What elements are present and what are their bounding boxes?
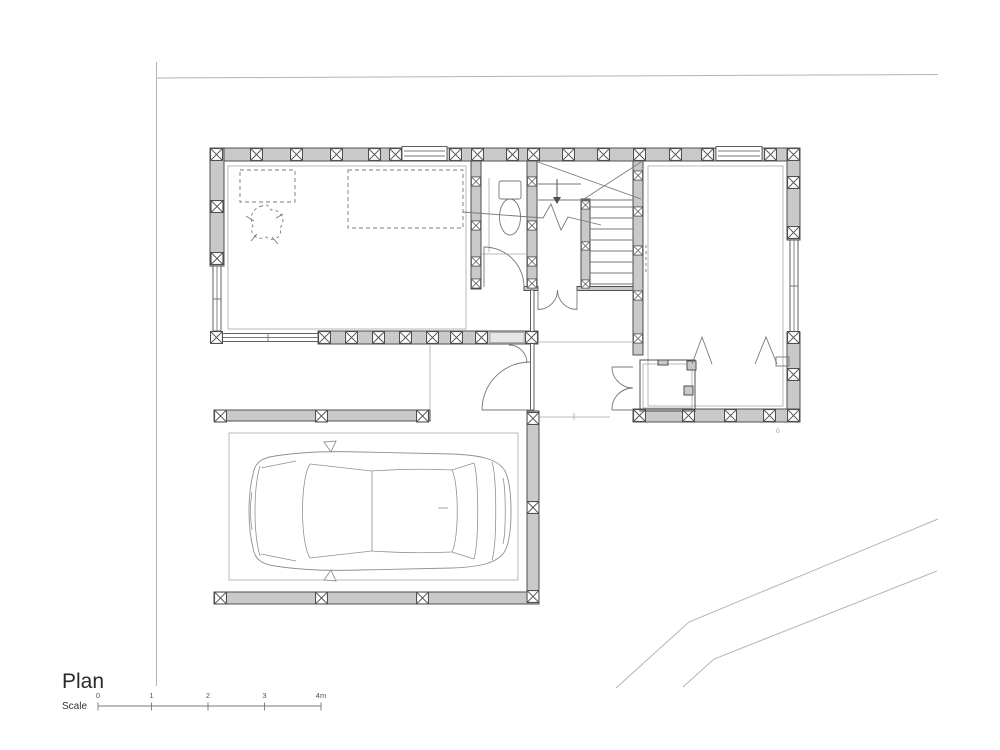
side-mirror	[324, 570, 336, 581]
scale-label: Scale	[62, 701, 87, 712]
storage-room	[640, 360, 696, 411]
side-mirror	[324, 441, 336, 452]
chevron-mark	[755, 337, 777, 364]
toilet-bowl	[500, 199, 521, 235]
wall-posts	[211, 149, 800, 422]
scale-tick-4: 4m	[316, 691, 326, 700]
scale-tick-3: 3	[262, 691, 266, 700]
toilet-tank	[499, 181, 521, 199]
windows	[213, 147, 798, 342]
plan-title: Plan	[62, 670, 104, 693]
floor-plan-drawing: Plan Scale 0 1 2 3 4m 0	[0, 0, 1000, 750]
right-room-symbols	[692, 337, 789, 366]
room-finish-lines	[228, 166, 783, 406]
chair-blob	[251, 205, 283, 239]
entrance-double-door	[538, 290, 577, 310]
drawing-sheet: Plan Scale 0 1 2 3 4m 0	[0, 0, 1000, 750]
porch-small-door	[509, 345, 527, 363]
dashed-furniture	[240, 170, 463, 244]
porch-door	[482, 362, 533, 410]
bathroom	[481, 178, 527, 287]
staircase	[463, 162, 641, 284]
car-top-view	[249, 441, 511, 581]
scale-tick-0: 0	[96, 691, 100, 700]
storage-door-leaf	[612, 367, 633, 388]
bathroom-door	[484, 247, 524, 287]
exterior-walls	[210, 148, 800, 422]
scale-tick-1: 1	[149, 691, 153, 700]
storage-door-leaf	[612, 388, 633, 410]
corner-mark: 0	[776, 428, 780, 435]
scale-tick-2: 2	[206, 691, 210, 700]
